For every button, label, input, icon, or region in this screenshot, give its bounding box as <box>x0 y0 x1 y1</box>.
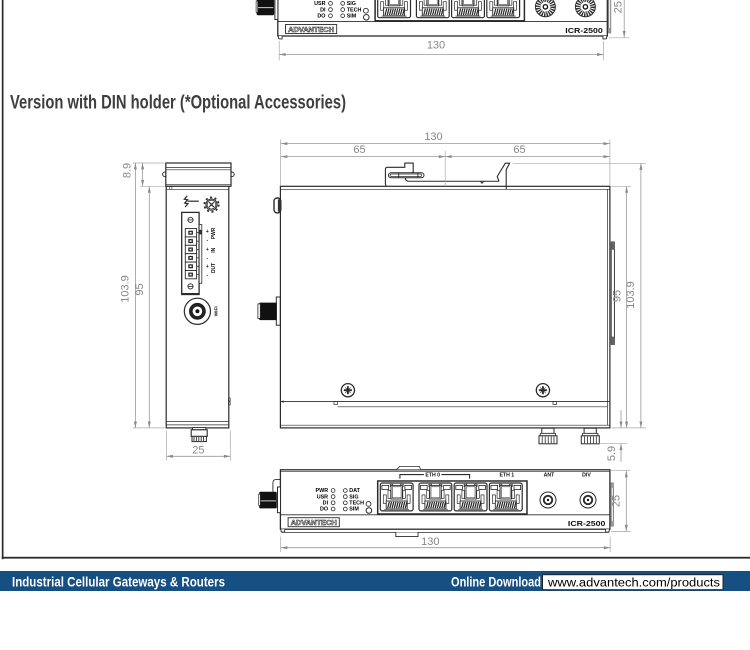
svg-text:IN: IN <box>211 247 217 252</box>
svg-text:+: + <box>206 264 209 270</box>
svg-text:5.9: 5.9 <box>606 446 618 461</box>
svg-text:25: 25 <box>192 445 204 457</box>
svg-text:65: 65 <box>353 144 365 156</box>
svg-text:Version with DIN holder (*Opti: Version with DIN holder (*Optional Acces… <box>10 92 346 114</box>
svg-text:8.9: 8.9 <box>122 163 134 178</box>
svg-text:Online Download: Online Download <box>451 574 541 589</box>
svg-text:+: + <box>206 247 209 253</box>
svg-text:Industrial Cellular Gateways &: Industrial Cellular Gateways & Routers <box>12 574 225 589</box>
svg-text:25: 25 <box>613 1 625 13</box>
svg-text:95: 95 <box>134 283 146 295</box>
svg-text:95: 95 <box>611 290 623 302</box>
svg-text:65: 65 <box>513 144 525 156</box>
svg-text:25: 25 <box>611 495 623 507</box>
svg-text:130: 130 <box>424 131 442 143</box>
svg-text:130: 130 <box>421 536 439 548</box>
svg-text:103.9: 103.9 <box>120 275 132 303</box>
svg-text:OUT: OUT <box>211 263 217 274</box>
svg-text:130: 130 <box>427 40 445 52</box>
svg-text:www.advantech.com/products: www.advantech.com/products <box>547 577 720 589</box>
svg-text:PWR: PWR <box>211 227 217 239</box>
svg-text:+: + <box>206 229 209 235</box>
svg-text:103.9: 103.9 <box>625 281 637 309</box>
svg-text:WIFI: WIFI <box>214 306 220 317</box>
